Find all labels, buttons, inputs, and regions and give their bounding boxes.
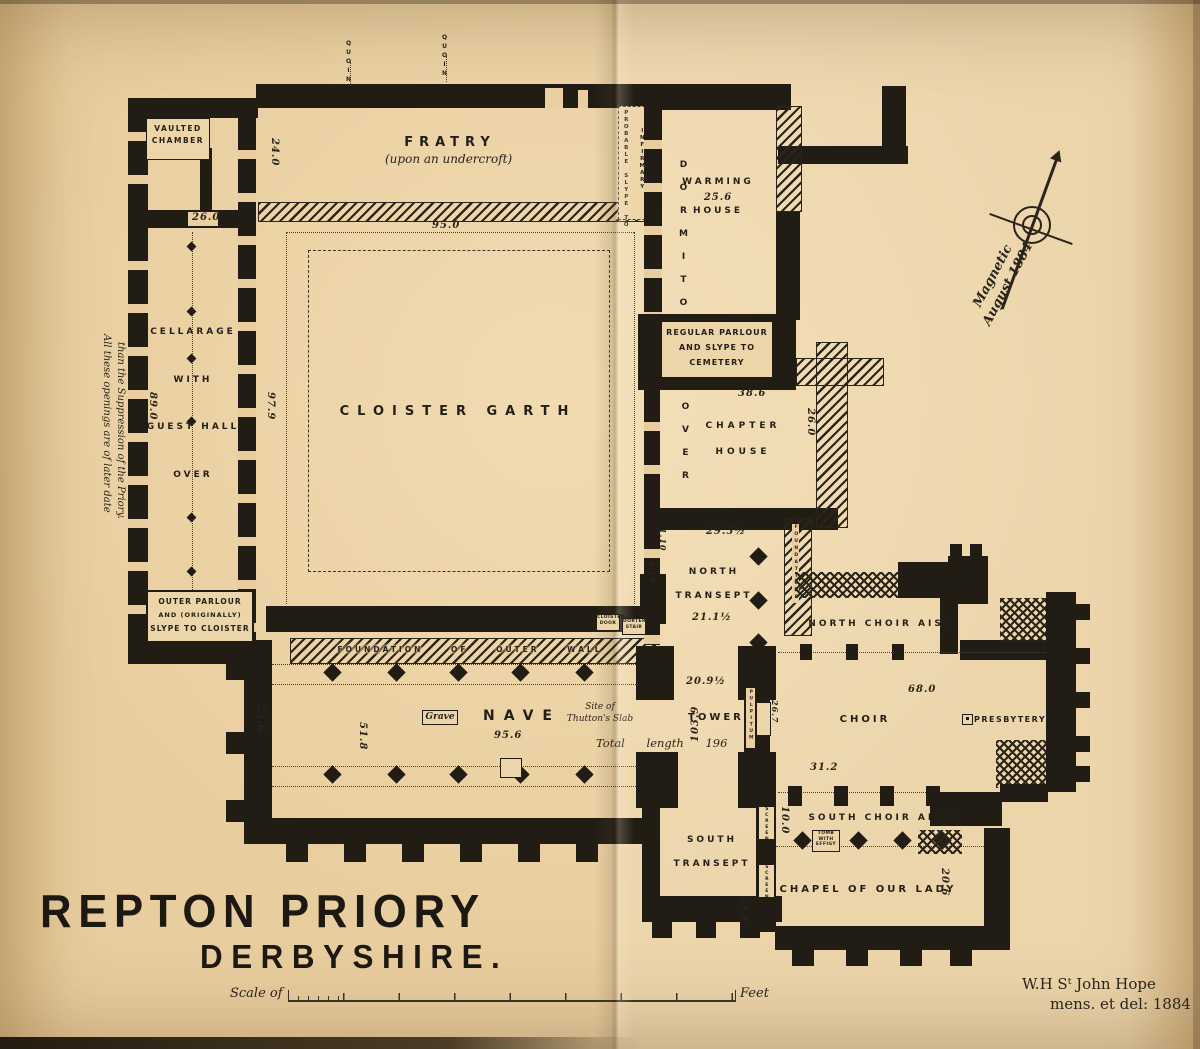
- pinnacle: [970, 544, 982, 556]
- pier-stub: [800, 644, 812, 660]
- attribution: W.H Sᵗ John Hope mens. et del: 1884: [1022, 974, 1191, 1015]
- attribution-line1: W.H Sᵗ John Hope: [1022, 974, 1191, 994]
- room-vaulted-chamber-label: VAULTED CHAMBER: [146, 118, 210, 160]
- room-north-choir-aisle-label: NORTH CHOIR AISLE: [800, 618, 970, 632]
- screen-text: SCREEN: [764, 865, 770, 901]
- vaulted-chamber-line2: CHAMBER: [147, 135, 209, 147]
- vaulted-chamber-line1: VAULTED: [147, 123, 209, 135]
- buttress: [1074, 766, 1090, 782]
- post: [187, 513, 197, 523]
- dim-51-8: 51.8: [357, 722, 368, 750]
- dim-26-0: 26.0: [192, 212, 220, 223]
- room-presbytery-label: PRESBYTERY: [974, 714, 1044, 726]
- dim-26-0-chapter: 26.0: [805, 408, 816, 436]
- pier-stub: [880, 786, 894, 806]
- dim-23-6: 23.6: [255, 704, 266, 732]
- quoin-leader: [350, 62, 351, 86]
- dim-20-6: 20.6: [939, 868, 950, 896]
- pier: [387, 765, 405, 783]
- pier: [449, 663, 467, 681]
- wall-segment: [960, 640, 1052, 660]
- scale-prefix: Scale of: [230, 986, 283, 1001]
- buttress: [226, 732, 244, 754]
- room-fratry-label: FRATRY: [330, 133, 570, 153]
- dim-24-0: 24.0: [269, 138, 280, 166]
- dim-10-0: 10.0: [779, 806, 790, 834]
- outer-parlour-line3: SLYPE TO CLOISTER: [148, 622, 252, 636]
- fratry-line1: FRATRY: [330, 133, 570, 153]
- fratry-subtitle: (upon an undercroft): [385, 152, 512, 166]
- pulpitum-doorway: [756, 702, 771, 736]
- post: [187, 567, 197, 577]
- room-choir-label: CHOIR: [830, 712, 900, 727]
- pulpitum-label: PULPITUM: [747, 690, 754, 742]
- arcade-line: [776, 846, 1006, 847]
- wall-segment: [655, 84, 791, 110]
- dim-4-10: 4.10: [648, 560, 658, 583]
- cloister-walk-line: [286, 232, 634, 233]
- pier-stub: [846, 644, 858, 660]
- probable-slype-label1: PROBABLE SLYPE TO: [622, 110, 630, 229]
- site-of-slab-label: Site of Thutton's Slab: [566, 702, 634, 725]
- dim-1-10: 1.10: [658, 528, 668, 551]
- pier: [749, 547, 767, 565]
- buttress: [900, 950, 922, 966]
- dormitory-over-label: OVER: [678, 402, 692, 494]
- pier: [575, 765, 593, 783]
- buttress: [652, 922, 672, 938]
- room-cloister-garth-label: CLOISTER GARTH: [318, 402, 598, 422]
- scale-bar: [288, 990, 736, 1002]
- screen-label: SCREEN: [758, 806, 775, 840]
- margin-note-line1: All these openings are of later date: [101, 334, 112, 513]
- north-transept-line1: NORTH: [664, 566, 764, 580]
- pier: [511, 663, 529, 681]
- wall-segment: [948, 556, 988, 604]
- arcade-line: [272, 684, 656, 685]
- grave-label: Grave: [422, 710, 458, 725]
- buttress: [344, 844, 366, 862]
- crossing-pier: [636, 646, 674, 700]
- screen-label: SCREEN: [758, 864, 775, 898]
- dim-20-9: 20.9½: [686, 676, 726, 687]
- buttress: [402, 844, 424, 862]
- cellarage-line2: WITH: [128, 374, 258, 388]
- wall-segment: [882, 86, 906, 164]
- regular-parlour-line3: CEMETERY: [662, 355, 772, 370]
- cellarage-line3: GUEST HALL: [128, 421, 258, 435]
- floorplan-canvas: VAULTED CHAMBER 26.0 CELLARAGE WITH GUES…: [0, 0, 1200, 1049]
- total-length-label: Total length 196: [596, 736, 727, 750]
- quoin-leader: [446, 56, 447, 82]
- shaded-wall: [996, 740, 1046, 788]
- pier: [323, 663, 341, 681]
- photo-edge-bottom: [0, 1037, 640, 1049]
- attribution-line2: mens. et del: 1884: [1022, 994, 1191, 1014]
- room-regular-parlour-label: REGULAR PARLOUR AND SLYPE TO CEMETERY: [660, 320, 774, 379]
- wall-segment: [775, 926, 997, 950]
- quoin-label-right: QUOIN: [440, 34, 449, 79]
- foundation-wall-label: FOUNDATION OF OUTER WALL: [300, 644, 640, 655]
- buttress: [1074, 736, 1090, 752]
- pier: [575, 663, 593, 681]
- wall-opening: [545, 88, 563, 108]
- cloister-walk-line: [634, 232, 635, 604]
- page-title: REPTON PRIORY: [40, 884, 486, 938]
- tomb-with-effigy-label: TOMB WITH EFFIGY: [812, 830, 840, 852]
- shaded-wall: [795, 572, 899, 598]
- arcade-line: [778, 652, 1046, 653]
- shaded-wall: [1000, 598, 1046, 642]
- hatched-wall: [776, 106, 802, 212]
- dim-21-1: 21.1½: [692, 612, 732, 623]
- regular-parlour-line2: AND SLYPE TO: [662, 340, 772, 355]
- wall-segment: [644, 106, 662, 320]
- wall-segment: [644, 388, 660, 528]
- buttress: [696, 922, 716, 938]
- font-outline: [500, 758, 522, 778]
- buttress: [518, 844, 540, 862]
- dorter-stair-label: DORTER STAIR: [622, 618, 646, 635]
- wall-segment: [984, 828, 1010, 950]
- hatched-wall: [796, 358, 884, 386]
- buttress: [226, 800, 244, 822]
- room-chapel-label: CHAPEL OF OUR LADY: [768, 882, 968, 897]
- shaded-wall: [918, 830, 962, 854]
- buttress: [226, 658, 244, 680]
- pier-stub: [788, 786, 802, 806]
- room-north-transept-label: NORTH TRANSEPT: [664, 566, 764, 603]
- outer-parlour-line2: AND (ORIGINALLY): [148, 609, 252, 621]
- south-transept-line1: SOUTH: [662, 834, 762, 848]
- buttress: [460, 844, 482, 862]
- regular-parlour-line1: REGULAR PARLOUR: [662, 325, 772, 340]
- buttress: [1074, 604, 1090, 620]
- hatched-wall: [258, 202, 656, 222]
- dim-26-7: 26.7: [770, 700, 780, 723]
- pier: [323, 765, 341, 783]
- buttress: [792, 950, 814, 966]
- buttress: [846, 950, 868, 966]
- pier-stub: [892, 644, 904, 660]
- margin-note-line2: than the Suppression of the Priory.: [115, 342, 126, 519]
- dim-38-6: 38.6: [738, 388, 766, 399]
- cellarage-line1: CELLARAGE: [128, 326, 258, 340]
- scale-bar-subdivisions: [289, 996, 344, 1000]
- dim-103-9: 103.9: [690, 706, 701, 742]
- photo-edge-right: [1193, 0, 1200, 1049]
- cloister-door-label: CLOISTER DOOR: [596, 614, 620, 631]
- compass-caption: Magnetic August 1884: [957, 218, 1051, 346]
- wall-opening: [578, 90, 588, 108]
- post: [187, 307, 197, 317]
- pier: [387, 663, 405, 681]
- dim-68-0: 68.0: [908, 684, 936, 695]
- pier-stub: [834, 786, 848, 806]
- cloister-walk-line: [286, 232, 287, 604]
- dim-97-9: 97.9: [265, 392, 276, 420]
- south-transept-line2: TRANSEPT: [662, 858, 762, 872]
- dim-21-9: 21.9: [740, 898, 750, 921]
- quoin-label-left: QUOIN: [344, 40, 353, 85]
- compass-arrowhead: [1050, 148, 1065, 162]
- wall-segment: [248, 818, 660, 844]
- buttress: [1074, 692, 1090, 708]
- buttress: [950, 950, 972, 966]
- room-south-choir-aisle-label: SOUTH CHOIR AISLE: [800, 812, 970, 826]
- dim-95-0: 95.0: [432, 220, 460, 231]
- room-nave-label: NAVE: [462, 706, 582, 727]
- site-line1: Site of: [566, 702, 634, 714]
- scale-suffix: Feet: [740, 986, 769, 1001]
- buttress: [286, 844, 308, 862]
- arcade-line: [272, 786, 656, 787]
- wall-segment: [256, 84, 660, 108]
- dim-95-6: 95.6: [494, 730, 522, 741]
- wall-segment: [776, 212, 800, 320]
- wall-segment: [642, 798, 660, 908]
- photo-edge-top: [0, 0, 1200, 4]
- page-subtitle: DERBYSHIRE.: [200, 938, 508, 976]
- dim-31-2: 31.2: [810, 762, 838, 773]
- cellarage-line4: OVER: [128, 469, 258, 483]
- wall-segment: [1000, 784, 1048, 802]
- room-outer-parlour-label: OUTER PARLOUR AND (ORIGINALLY) SLYPE TO …: [146, 590, 254, 643]
- presbytery-icon: [962, 714, 973, 725]
- screen-text: SCREEN: [764, 807, 770, 843]
- pinnacle: [950, 544, 962, 556]
- buttress: [576, 844, 598, 862]
- site-line2: Thutton's Slab: [566, 714, 634, 726]
- outer-parlour-line1: OUTER PARLOUR: [148, 595, 252, 609]
- wall-segment: [244, 646, 272, 844]
- dim-89-0: 89.0: [147, 392, 158, 420]
- room-south-transept-label: SOUTH TRANSEPT: [662, 834, 762, 871]
- buttress: [1074, 648, 1090, 664]
- post: [187, 242, 197, 252]
- pier: [449, 765, 467, 783]
- wall-segment: [1046, 592, 1076, 792]
- dim-29-5: 29.5½: [706, 526, 746, 537]
